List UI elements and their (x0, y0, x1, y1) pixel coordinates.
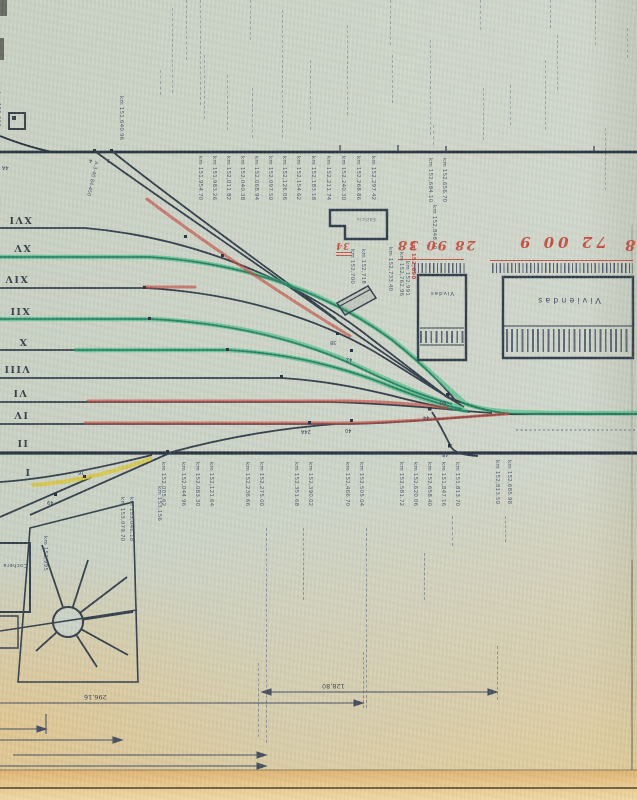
km-label: km 152,240.30 (340, 156, 346, 200)
track-number: XV (13, 242, 31, 253)
platform (337, 286, 376, 315)
tick-row (492, 263, 633, 273)
km-label: km 152,011.82 (225, 156, 231, 200)
red-underline-sm (336, 252, 352, 253)
km-label: km 152,685.98 (506, 460, 512, 504)
leader-dash (505, 516, 506, 542)
switch-number: 44 (423, 414, 429, 420)
km-label: km 152,268.86 (355, 156, 361, 200)
track-number: VI (12, 387, 27, 398)
km-label: km 153,046.18 (128, 497, 134, 541)
km-label: km 152,040.38 (239, 156, 245, 200)
km-label: km 152,466.70 (344, 462, 350, 506)
km-label: km 152,581.72 (398, 462, 404, 506)
km-label: km 152,236.66 (244, 462, 250, 506)
red-underline (398, 259, 464, 260)
km-label: km 152,813.50 (494, 460, 500, 504)
small-building-outline (418, 275, 466, 360)
km-label: km 153,156 (156, 486, 162, 521)
km-label: km 152,718 (360, 249, 366, 284)
paper-edges (0, 225, 637, 800)
km-label: km 152,620.06 (412, 462, 418, 506)
km-label: km 152,097.50 (267, 156, 273, 200)
switch-number: 40 (345, 427, 351, 433)
leader-dash (363, 652, 364, 708)
yellow-marker (33, 459, 150, 485)
km-label: km 152,390.02 (307, 462, 313, 506)
track-number: II (16, 437, 28, 448)
signal-symbol (8, 112, 26, 130)
dimension-lines (0, 689, 497, 769)
km-label: km 152,083.30 (194, 462, 200, 506)
track-number: XII (9, 305, 30, 316)
switch-number: 9 (107, 157, 110, 163)
km-label: km 152,126.06 (281, 156, 287, 200)
track-number: XVI (8, 214, 32, 225)
turntable-depot (0, 502, 138, 682)
km-label: km 152,733.40 (387, 247, 393, 291)
km-label: km 152,068.94 (253, 156, 259, 200)
km-label: km 152,121.64 (208, 462, 214, 506)
switch-number: 4A (2, 164, 9, 170)
cochera-label: Cochera (2, 562, 28, 568)
scanned-track-plan: XVIXVXIVXIIXVIIIVIIVIII km 151,640.96km … (0, 0, 637, 800)
switch-number: 50 (440, 399, 446, 405)
km-label: km 151,612 (0, 92, 1, 127)
km-label: km 152,658.40 (426, 462, 432, 506)
km-label: km 152,684.10 (427, 158, 433, 202)
track-linework (0, 0, 637, 800)
red-annotation-building: 34 (335, 240, 350, 250)
turntable-spokes (36, 545, 133, 667)
tick-row (414, 263, 466, 273)
km-label: km 152,297.42 (370, 156, 376, 200)
km-label: km 152,154.62 (295, 156, 301, 200)
switch-number: 42 (346, 356, 352, 362)
red-underline-sm2 (336, 255, 352, 256)
viviendas-label: Viviendas (528, 296, 608, 305)
track-number: XIV (4, 273, 28, 284)
page-bottom-edge (0, 770, 637, 800)
km-label: km 152,656.70 (441, 158, 447, 202)
km-label: km 151,847.16 (440, 462, 446, 506)
km-label: km 152,044.96 (180, 462, 186, 506)
km-label: km 152,995 (42, 536, 48, 571)
km-label: km 151,983.26 (211, 156, 217, 200)
km-label: km 152,351.68 (293, 462, 299, 506)
km-label: km 152,505.04 (358, 462, 364, 506)
red-underline-long (490, 260, 633, 261)
switch-number: 49 (47, 499, 53, 505)
km-label: km 151,813.70 (454, 462, 460, 506)
track-number: VIII (3, 363, 30, 374)
track-number: I (24, 466, 30, 477)
station-building-label: Edificio (348, 217, 384, 222)
leader-dash (424, 553, 425, 600)
leader-dash (366, 528, 367, 708)
dimension-label: 128,80 (322, 682, 345, 690)
leader-dash (303, 528, 304, 600)
scan-smudge (0, 38, 4, 60)
scan-smudge (0, 0, 7, 16)
hatch-band (420, 331, 464, 343)
switch-dots (54, 149, 452, 496)
hatch-band (506, 329, 629, 352)
switch-number: 16 (78, 469, 84, 475)
switch-number: 38 (330, 339, 336, 345)
small-building-label: Vivdas (422, 290, 462, 296)
switch-number: 24A (301, 428, 311, 434)
km-label: km 153,079.70 (119, 497, 125, 541)
red-km-note: km 152,690 (410, 241, 416, 279)
km-label: km 151,640.96 (118, 96, 124, 140)
km-label: km 152,211.74 (325, 156, 331, 200)
km-label: km 151,954.70 (197, 156, 203, 200)
km-label: km 152,275.00 (258, 462, 264, 506)
track-number: X (18, 336, 27, 347)
km-label: km 152,183.18 (310, 156, 316, 200)
red-annotation-edge: 28 (621, 236, 637, 254)
track-number: IV (13, 409, 28, 420)
dimension-label: 296,16 (84, 693, 107, 701)
leader-dash (497, 646, 498, 700)
leader-dash (452, 516, 453, 546)
red-annotation-right: 72 00 9 (516, 233, 607, 251)
switch-number: 48 (442, 451, 448, 457)
station-building-outline (330, 210, 387, 239)
red-marker (85, 199, 508, 423)
leader-dash (266, 528, 267, 743)
leader-dash (258, 663, 259, 737)
red-annotation-left: 28 90 38 (396, 237, 475, 252)
